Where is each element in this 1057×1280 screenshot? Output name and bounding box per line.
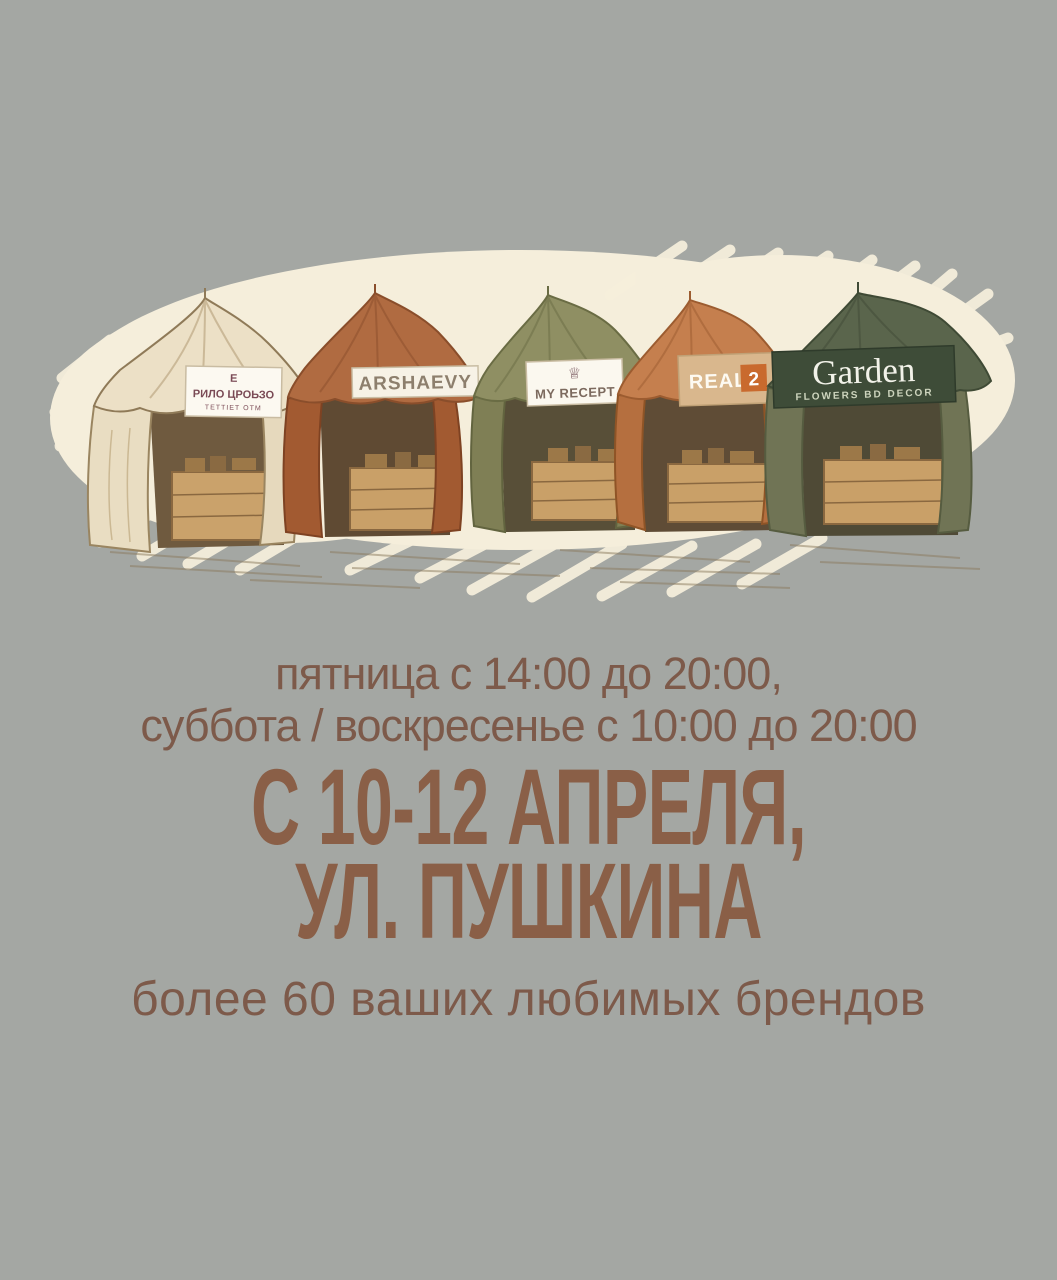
banner-cream-tent: Е РИЛО ЦРОЬЗО ТЕТТІЕТ ОТМ bbox=[185, 366, 282, 418]
tents-illustration: Е РИЛО ЦРОЬЗО ТЕТТІЕТ ОТМ bbox=[0, 200, 1057, 630]
banner-sub-label: ТЕТТІЕТ ОТМ bbox=[205, 404, 262, 412]
banner-garden: Garden FLOWERS BD DECOR bbox=[772, 346, 956, 408]
schedule-line-1: пятница с 14:00 до 20:00, bbox=[0, 648, 1057, 700]
brands-subheading: более 60 ваших любимых брендов bbox=[0, 972, 1057, 1027]
schedule-text: пятница с 14:00 до 20:00, суббота / воск… bbox=[0, 648, 1057, 752]
tents-illustration-svg: Е РИЛО ЦРОЬЗО ТЕТТІЕТ ОТМ bbox=[0, 200, 1057, 630]
event-poster: Е РИЛО ЦРОЬЗО ТЕТТІЕТ ОТМ bbox=[0, 0, 1057, 1280]
banner-main-label: РИЛО ЦРОЬЗО bbox=[193, 388, 275, 401]
banner-top-label: Е bbox=[230, 373, 238, 385]
schedule-line-2: суббота / воскресенье с 10:00 до 20:00 bbox=[0, 700, 1057, 752]
banner-arshaevy: ARSHAEVY bbox=[352, 366, 479, 398]
banner-label: REAL bbox=[689, 370, 748, 394]
badge-label: 2 bbox=[748, 369, 759, 390]
banner-real2: REAL 2 bbox=[678, 353, 774, 406]
crown-icon: ♕ bbox=[567, 365, 581, 382]
event-heading: С 10-12 АПРЕЛЯ, УЛ. ПУШКИНА bbox=[0, 760, 1057, 948]
banner-label: MY RECEPT bbox=[535, 384, 616, 402]
heading-line-2: УЛ. ПУШКИНА bbox=[196, 854, 862, 948]
banner-my-recept: ♕ MY RECEPT bbox=[526, 359, 623, 406]
banner-label: ARSHAEVY bbox=[358, 372, 472, 395]
crate bbox=[668, 448, 768, 522]
banner-label: Garden bbox=[812, 350, 916, 393]
